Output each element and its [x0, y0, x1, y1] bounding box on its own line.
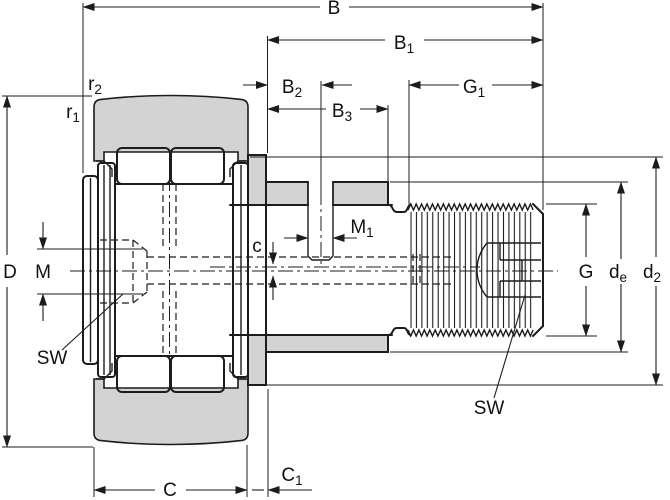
label-D: D: [3, 262, 17, 283]
label-C: C: [163, 480, 177, 500]
label-B3: B3: [332, 101, 352, 124]
outer-ring: [94, 96, 248, 445]
label-SW-left: SW: [37, 348, 68, 369]
stud-collar: [248, 155, 266, 385]
label-de: de: [609, 262, 627, 285]
label-d2: d2: [643, 262, 661, 285]
bearing-dimension-diagram: B B1 B2 B3 G1 r2 r1 D M SW c M1 G de d2 …: [0, 0, 670, 500]
label-r1: r1: [66, 102, 80, 125]
label-M1: M1: [350, 217, 373, 240]
label-G: G: [579, 262, 594, 283]
label-C1: C1: [281, 465, 302, 488]
label-c: c: [252, 236, 262, 257]
label-SW-right: SW: [474, 398, 505, 419]
stud-head: [83, 163, 248, 377]
label-B1: B1: [394, 33, 414, 56]
label-r2: r2: [88, 74, 102, 97]
label-G1: G1: [463, 77, 485, 100]
label-M: M: [35, 262, 51, 283]
label-B: B: [328, 0, 341, 19]
technical-drawing-canvas: B B1 B2 B3 G1 r2 r1 D M SW c M1 G de d2 …: [0, 0, 670, 500]
seals: [96, 161, 246, 379]
label-B2: B2: [282, 77, 302, 100]
hidden-lines: [100, 184, 453, 356]
thread: [408, 204, 543, 336]
